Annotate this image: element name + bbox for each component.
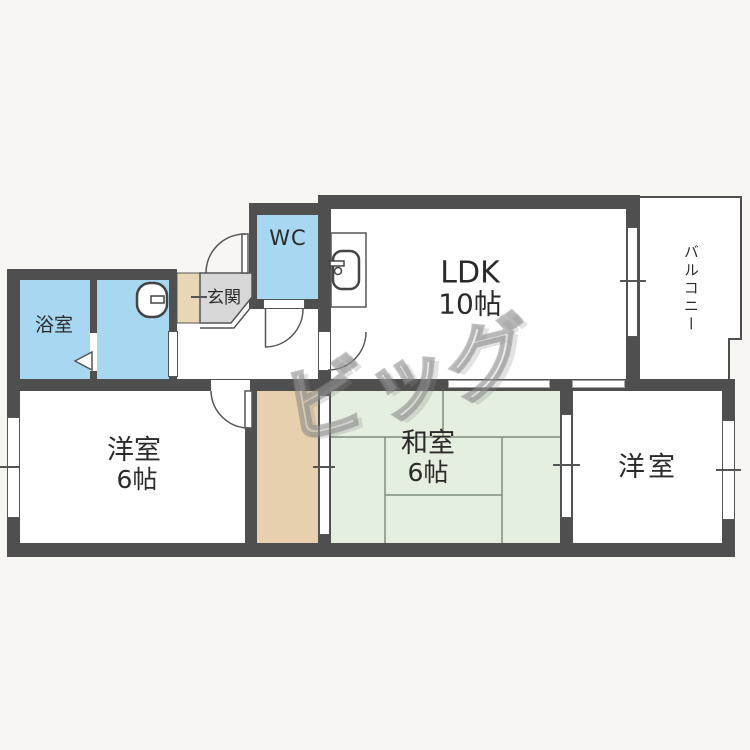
window-slot-western-left [7,417,20,518]
wall [245,391,257,544]
door-opening-bathroom [90,333,97,371]
hallway [177,309,318,379]
door-opening-ldk [318,331,331,371]
western-right-label: 洋室 [618,454,678,482]
ldk-label: LDK [440,257,500,289]
wall [249,203,331,215]
wall [7,379,735,391]
japanese-room-label: 和室 [401,430,455,458]
door-opening-washroom [168,331,178,377]
sliding-door-ldk-western-right [572,380,625,388]
japanese-room-size-label: 6帖 [408,460,449,486]
ldk-size-label: 10帖 [438,289,502,318]
wc-label: WC [269,227,306,249]
window-slot-western-right [722,420,735,520]
closet [257,391,318,543]
wall [7,543,735,557]
western-left-size-label: 6帖 [117,467,158,493]
wall [318,195,640,209]
bathroom-label: 浴室 [35,316,73,336]
window-slot-ldk-balcony [627,227,638,337]
sliding-door-japanese-western [561,414,572,518]
wall [249,203,257,309]
western-left-label: 洋室 [107,437,161,465]
sliding-door-closet [319,395,330,535]
entrance-door-leaf-icon [242,234,248,273]
door-opening-wc [263,299,305,309]
balcony-label: バルコニー [682,244,698,334]
entrance-door-arc-icon [206,234,245,273]
room-washroom [97,280,169,379]
door-opening-western-left [211,380,250,391]
entrance-label: 玄関 [207,290,241,308]
floor-plan: 浴室 玄関 WC LDK 10帖 バルコニー 洋室 6帖 和室 6帖 洋室 ビッ… [0,0,750,750]
sliding-door-ldk-japanese [448,380,550,388]
